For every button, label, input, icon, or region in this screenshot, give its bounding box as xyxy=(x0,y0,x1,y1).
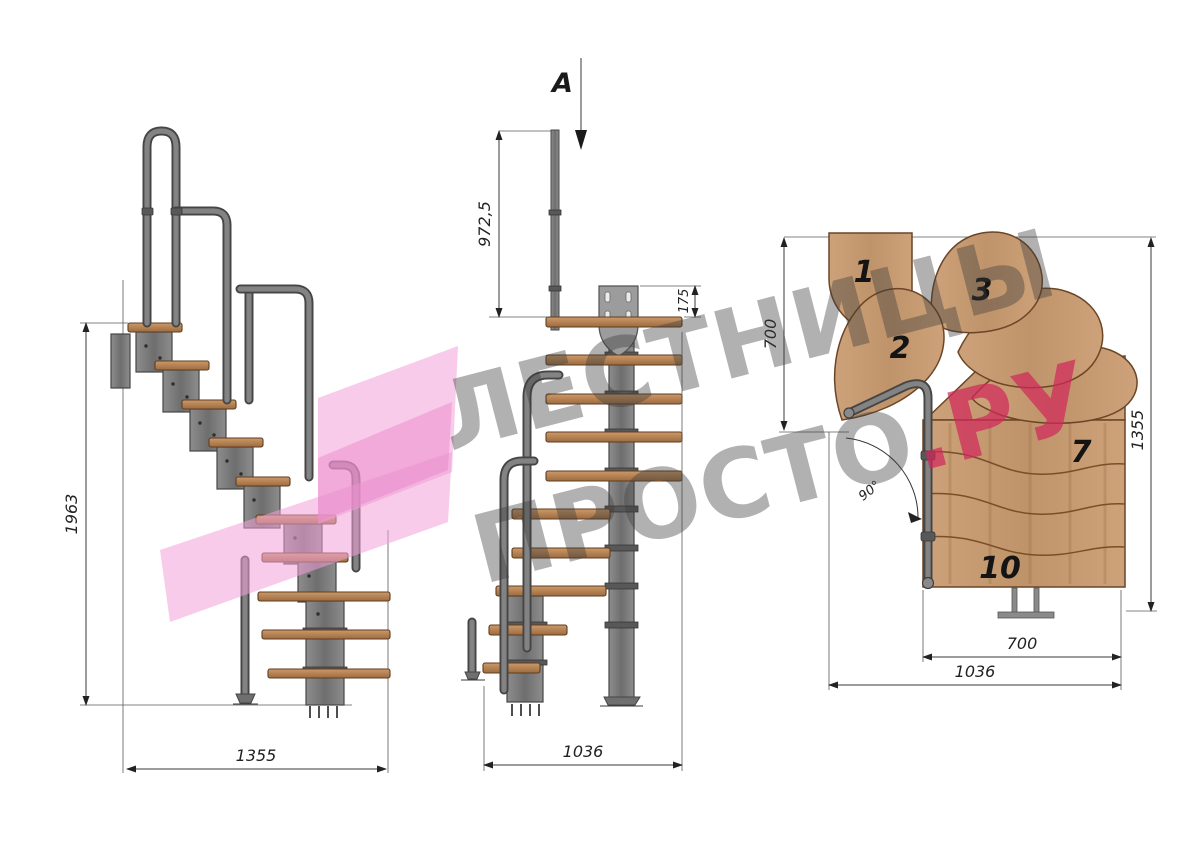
dim-rail-height: 972,5 xyxy=(475,201,494,247)
dim-side-width: 1355 xyxy=(236,746,277,765)
dim-plan-length: 1355 xyxy=(1128,410,1147,451)
plan-fan-treads xyxy=(829,232,1137,423)
step-number-3: 3 xyxy=(972,273,993,308)
front-view: A xyxy=(461,58,701,771)
dim-front-width: 1036 xyxy=(563,742,604,761)
step-number-7: 7 xyxy=(1071,435,1092,470)
technical-drawing: 1963 1355 A xyxy=(0,0,1200,849)
front-left-leg xyxy=(461,622,485,680)
dim-plan-width-outer: 1036 xyxy=(955,662,996,681)
dim-plan-depth: 700 xyxy=(761,319,780,350)
section-arrow-icon xyxy=(575,130,587,150)
dim-plan-width-inner: 700 xyxy=(1007,634,1038,653)
handrail-post xyxy=(551,130,559,330)
wall-bracket xyxy=(111,334,130,388)
turn-angle: 90° xyxy=(846,438,922,523)
dim-turn-angle: 90° xyxy=(856,478,883,504)
dim-side-height: 1963 xyxy=(62,494,81,535)
plan-view: 90° 1 2 3 7 10 700 1355 700 1036 xyxy=(761,232,1157,690)
step-number-10: 10 xyxy=(979,551,1021,586)
anchor-bolts xyxy=(310,706,337,718)
section-label: A xyxy=(550,68,573,99)
floor-anchor xyxy=(998,588,1054,618)
drawing-canvas: 1963 1355 A xyxy=(0,0,1200,849)
dim-bracket-height: 175 xyxy=(677,289,692,314)
step-number-2: 2 xyxy=(890,331,911,366)
step-number-1: 1 xyxy=(854,255,875,290)
